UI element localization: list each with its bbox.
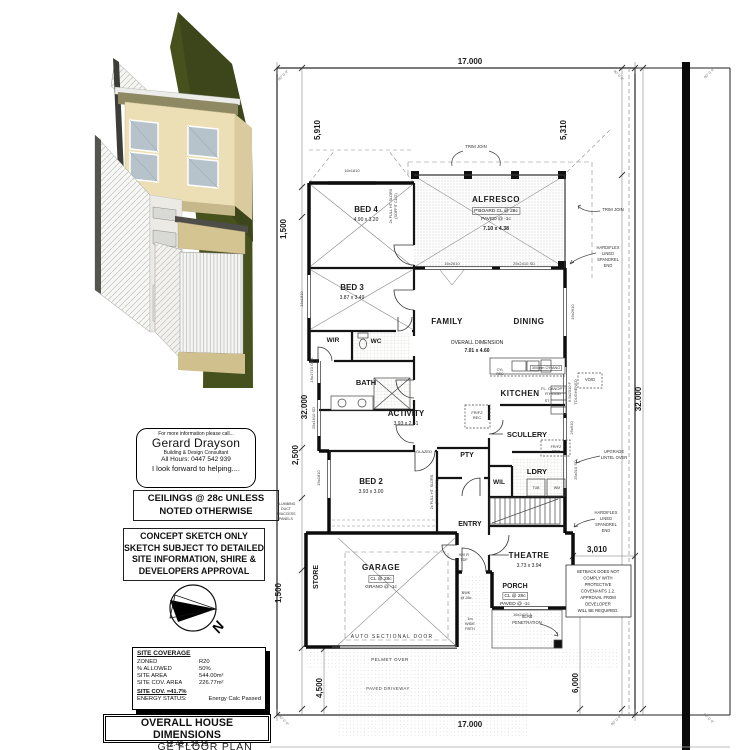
room-theatre: THEATRE	[509, 551, 550, 560]
sliders-note1-l2: (SOFFIT CL'G)	[394, 192, 398, 218]
hardiflex-note2-l4: END	[602, 528, 611, 533]
fridge-recess2-l1: FR/FZ	[551, 445, 562, 449]
porch-ceiling-note: CL @ 28c	[504, 593, 526, 599]
room-bed3-size: 3.87 x 3.49	[340, 295, 365, 301]
setback-note-l1: SETBACK DOES NOT	[577, 569, 620, 574]
path-label-l1: 1m	[467, 617, 472, 621]
hardiflex-note2-l1: HARDIFLEX	[595, 510, 618, 515]
room-laundry: LDRY	[527, 467, 547, 476]
plumbing-duct-l3: W/ACCESS	[276, 512, 296, 516]
room-alfresco-size: 7.10 x 4.38	[483, 226, 509, 232]
room-bed2: BED 2	[359, 477, 383, 486]
room-wil: WIL	[493, 479, 505, 486]
room-theatre-size: 3.73 x 3.94	[517, 563, 542, 569]
canopy-label-l2: R'HOOD	[545, 391, 561, 396]
setback-note-l5: APPROVAL FROM	[580, 595, 616, 600]
window-alfresco-left: 16x2610	[444, 261, 460, 266]
room-dining: DINING	[514, 317, 545, 326]
setback-note-l6: DEVELOPER	[585, 602, 611, 607]
cyl-rec-l2: REC	[496, 372, 504, 376]
window-bed4: 16x1810	[344, 168, 360, 173]
upgrade-lintel-l1: UPGRADE	[604, 449, 625, 454]
plumbing-duct-l1: PLUMBING	[277, 502, 296, 506]
room-bed2-size: 3.93 x 3.00	[359, 489, 384, 495]
room-bed4: BED 4	[354, 205, 378, 214]
setback-note-l7: WILL BE REQUIRED.	[578, 608, 619, 613]
hardiflex-note1-l1: HARDIFLEX	[597, 245, 620, 250]
room-alfresco: ALFRESCO	[472, 195, 520, 204]
garage-ceiling-note: CL @ 28c	[370, 576, 392, 582]
bearing-bottom-inner-right: 90° 0' 0"	[610, 714, 623, 727]
upgrade-lintel-l2: LINTEL OVER	[601, 455, 628, 460]
room-bed4-size: 4.90 x 3.20	[354, 217, 379, 223]
window-dining: 16x2610	[570, 304, 575, 320]
family-overall-dim-label: OVERALL DIMENSION	[451, 340, 504, 346]
fridge-recess-l2: REC	[473, 415, 482, 420]
plumbing-duct-l2: DUCT	[281, 507, 292, 511]
bearing-top-right: 90° 0' 0"	[703, 67, 716, 80]
dim-right-6000: 6,000	[571, 672, 580, 693]
washing-machine-label: WM	[554, 486, 560, 490]
trim-join-top-note: TRIM JOIN	[465, 144, 486, 149]
dim-left-4500: 4,500	[315, 677, 324, 698]
void-label: VOID	[585, 377, 595, 382]
wc-tiles	[353, 333, 410, 360]
alfresco-ceiling-note: P'BOARD CL @ 28c	[474, 208, 518, 214]
room-wir: WIR	[327, 337, 340, 344]
window-kitchen-toughened: TOUGHENED	[573, 379, 578, 405]
dim-top-17000: 17.000	[458, 57, 483, 66]
dim-left-1500-lower: 1,500	[274, 582, 283, 603]
hardiflex-note2-l3: SPANDREL	[595, 522, 617, 527]
dim-right-5310: 5,310	[559, 119, 568, 140]
sliders-note1-l1: 2x FULL HT. SLDRS	[389, 188, 393, 223]
door-920-l1: 920 R	[459, 553, 469, 557]
window-scullery: 25x910	[569, 421, 574, 435]
stove-label: ST	[545, 399, 551, 403]
window-kitchen-f: 6.5x2310 F	[567, 381, 572, 402]
bwk-label-l1: BWK	[462, 591, 471, 595]
glazed-label: GLAZED	[416, 449, 432, 454]
side-path	[459, 574, 488, 649]
setback-note-l4: COVENANTS 1.2.	[581, 589, 615, 594]
hardiflex-note1-l4: END	[604, 263, 613, 268]
room-scullery: SCULLERY	[507, 430, 547, 439]
paved-driveway-label: PAVED DRIVEWAY	[366, 686, 410, 691]
laundry-tiles	[512, 458, 565, 496]
overhang-label: 300mm O'HANG	[532, 366, 560, 370]
garage-floor-note: GRANO @ -1c	[365, 584, 397, 590]
bearing-bottom-right: 90° 0' 0"	[703, 712, 716, 725]
window-activity-sd: 25x1610 SD	[311, 407, 316, 429]
hardiflex-note1-l2: LINED	[602, 251, 614, 256]
room-bed3: BED 3	[340, 283, 364, 292]
room-garage: GARAGE	[362, 563, 400, 572]
dim-bottom-17000: 17.000	[458, 720, 483, 729]
room-porch: PORCH	[502, 583, 527, 590]
dim-left-5910: 5,910	[313, 119, 322, 140]
path-label-l3: PATH	[465, 627, 475, 631]
dim-3010: 3,010	[587, 545, 608, 554]
window-bed2: 16x1810	[316, 470, 321, 486]
porch-paved-note: PAVED @ -1c	[500, 601, 530, 607]
floor-plan-drawing: 17.00017.0005,9105,3101,50032.0002,5001,…	[0, 0, 750, 750]
porch-post	[554, 640, 562, 648]
room-activity-size: 3.93 x 2.41	[394, 421, 419, 427]
neighbour-wall-bar	[682, 62, 690, 750]
setback-note-l2: COMPLY WITH	[583, 576, 612, 581]
plumbing-duct-l4: PANELS	[279, 517, 294, 521]
room-bath: BATH	[356, 378, 376, 387]
setback-note-l3: PROTECTIVE	[585, 582, 612, 587]
window-alfresco-sd: 25x2410 SD	[513, 261, 535, 266]
window-bed3: 16x1810	[299, 291, 304, 307]
slab-penetration-l2: PENETRATION	[512, 620, 541, 625]
bearing-top-left: 90° 0' 0"	[277, 69, 290, 82]
hardiflex-note1-l3: SPANDREL	[597, 257, 619, 262]
window-theatre: 16x2410 A.	[513, 612, 533, 617]
pelmet-strip	[306, 649, 617, 669]
dim-left-1500-upper: 1,500	[279, 218, 288, 239]
driveway-paving	[338, 669, 527, 736]
sliders-note2-l1: 2x FULL HT. SLDRS	[430, 474, 434, 509]
door-920-l2: TDF	[460, 558, 468, 562]
window-bath-obs: 16x1710 OBS	[309, 357, 314, 382]
dim-right-32000: 32.000	[634, 386, 643, 411]
room-family: FAMILY	[431, 317, 463, 326]
path-label-l2: WIDE	[465, 622, 475, 626]
room-entry: ENTRY	[458, 521, 482, 528]
room-wc: WC	[371, 338, 382, 345]
dim-left-32000: 32.000	[300, 394, 309, 419]
window-laundry-sd: 25x910 SD	[573, 460, 578, 480]
room-store: STORE	[313, 565, 320, 589]
sliders-note2-l2: (SOFFIT CL'G)	[435, 478, 439, 504]
auto-sectional-door-label: AUTO SECTIONAL DOOR	[351, 634, 434, 640]
bwk-label-l2: @ 28c	[460, 596, 471, 600]
bearing-top-inner-right: 90° 0' 0"	[613, 69, 626, 82]
family-overall-dim-value: 7.01 x 4.60	[464, 348, 489, 354]
laundry-tub-label: TUB	[533, 486, 541, 490]
pelmet-over-label: PELMET OVER	[371, 657, 409, 662]
room-pantry: PTY	[460, 452, 474, 459]
hardiflex-note2-l2: LINED	[600, 516, 612, 521]
dim-left-2500: 2,500	[291, 444, 300, 465]
bearing-bottom-left: 90° 0' 0"	[278, 714, 291, 727]
alfresco-paved-note: PAVED @ -1c	[481, 216, 511, 222]
fridge-recess2-l2: REC	[552, 450, 560, 454]
room-activity: ACTIVITY	[388, 409, 425, 418]
trim-join-right-note: TRIM JOIN	[602, 207, 623, 212]
floor-plan-sheet: For more information please call... Gera…	[0, 0, 750, 750]
room-kitchen: KITCHEN	[500, 389, 539, 398]
